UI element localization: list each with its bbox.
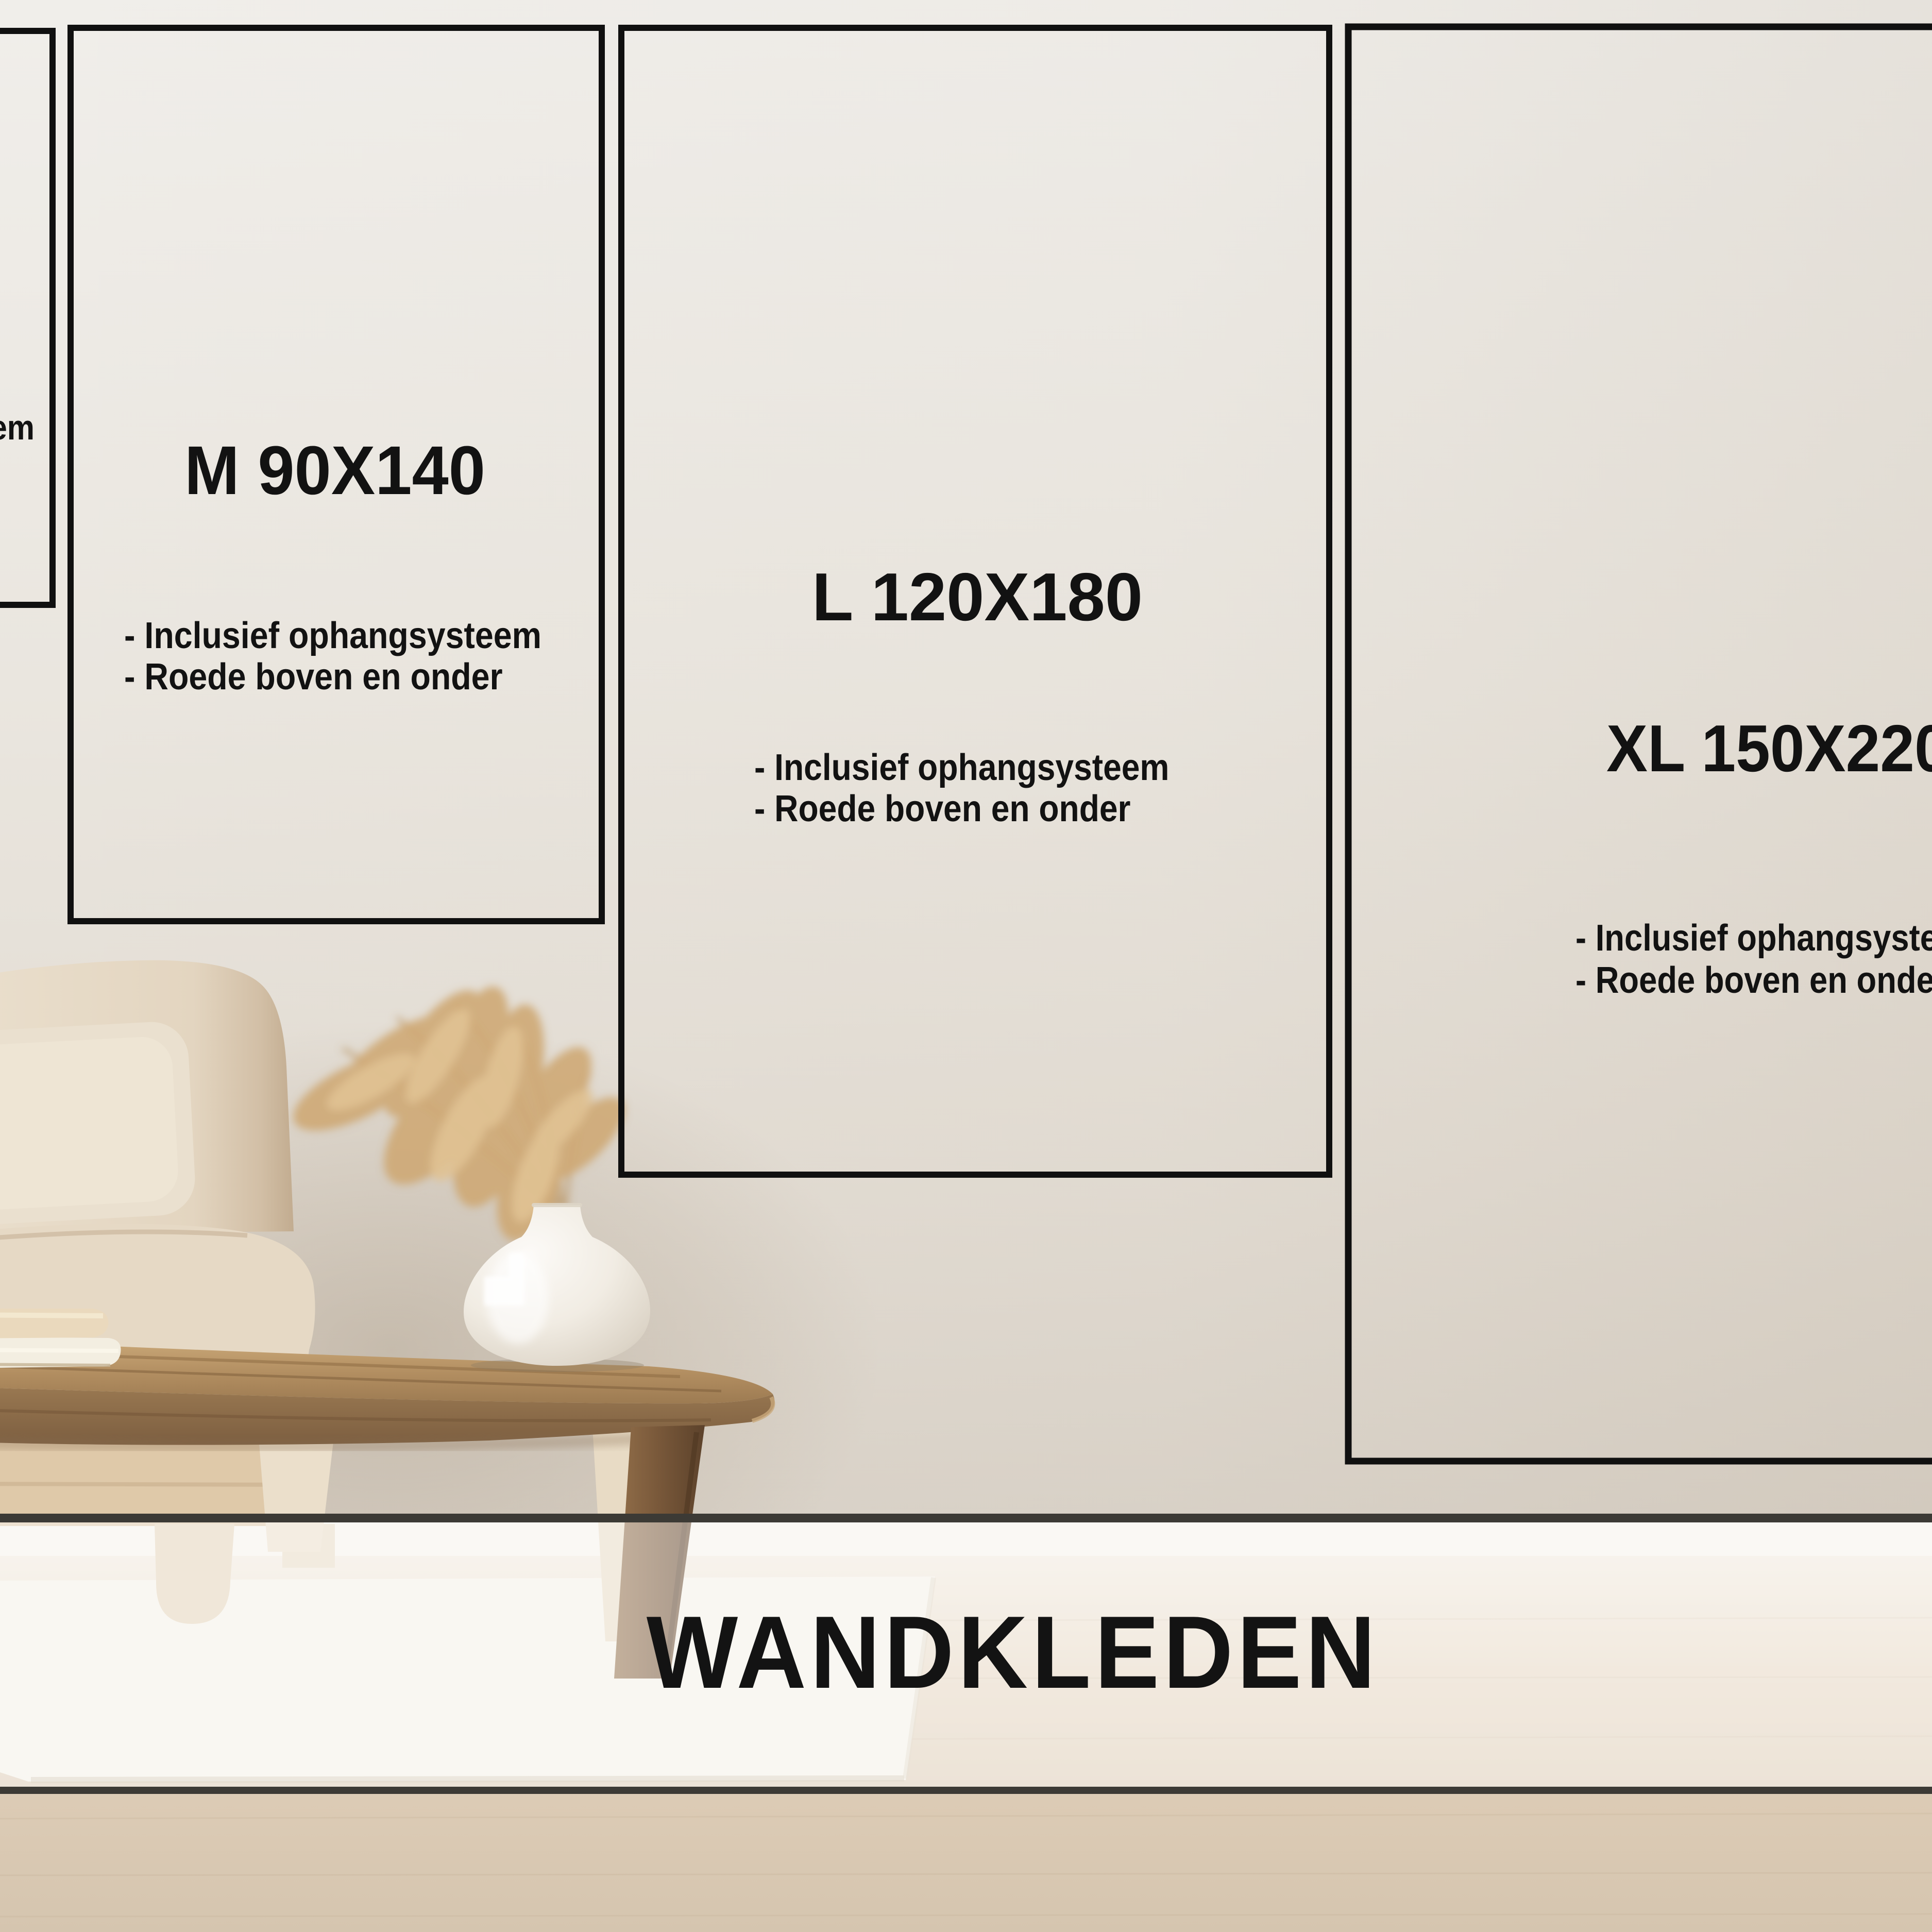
svg-text:- Inclusief ophangsysteem: - Inclusief ophangsysteem bbox=[754, 747, 1169, 788]
svg-text:M 90X140: M 90X140 bbox=[184, 431, 485, 509]
svg-text:XL 150X220: XL 150X220 bbox=[1606, 711, 1932, 786]
svg-text:L 120X180: L 120X180 bbox=[812, 559, 1143, 635]
svg-text:- Inclusief ophangsysteem: - Inclusief ophangsysteem bbox=[1575, 918, 1932, 959]
svg-text:WANDKLEDEN: WANDKLEDEN bbox=[647, 1595, 1379, 1710]
svg-text:- Roede boven en onder: - Roede boven en onder bbox=[754, 788, 1131, 829]
svg-text:- Roede boven en onder: - Roede boven en onder bbox=[1575, 960, 1932, 1001]
svg-text:- Roede boven en onder: - Roede boven en onder bbox=[124, 656, 503, 698]
svg-text:- Inclusief ophangsysteem: - Inclusief ophangsysteem bbox=[124, 615, 541, 656]
svg-text:- Inclusief ophangsysteem: - Inclusief ophangsysteem bbox=[0, 408, 35, 447]
